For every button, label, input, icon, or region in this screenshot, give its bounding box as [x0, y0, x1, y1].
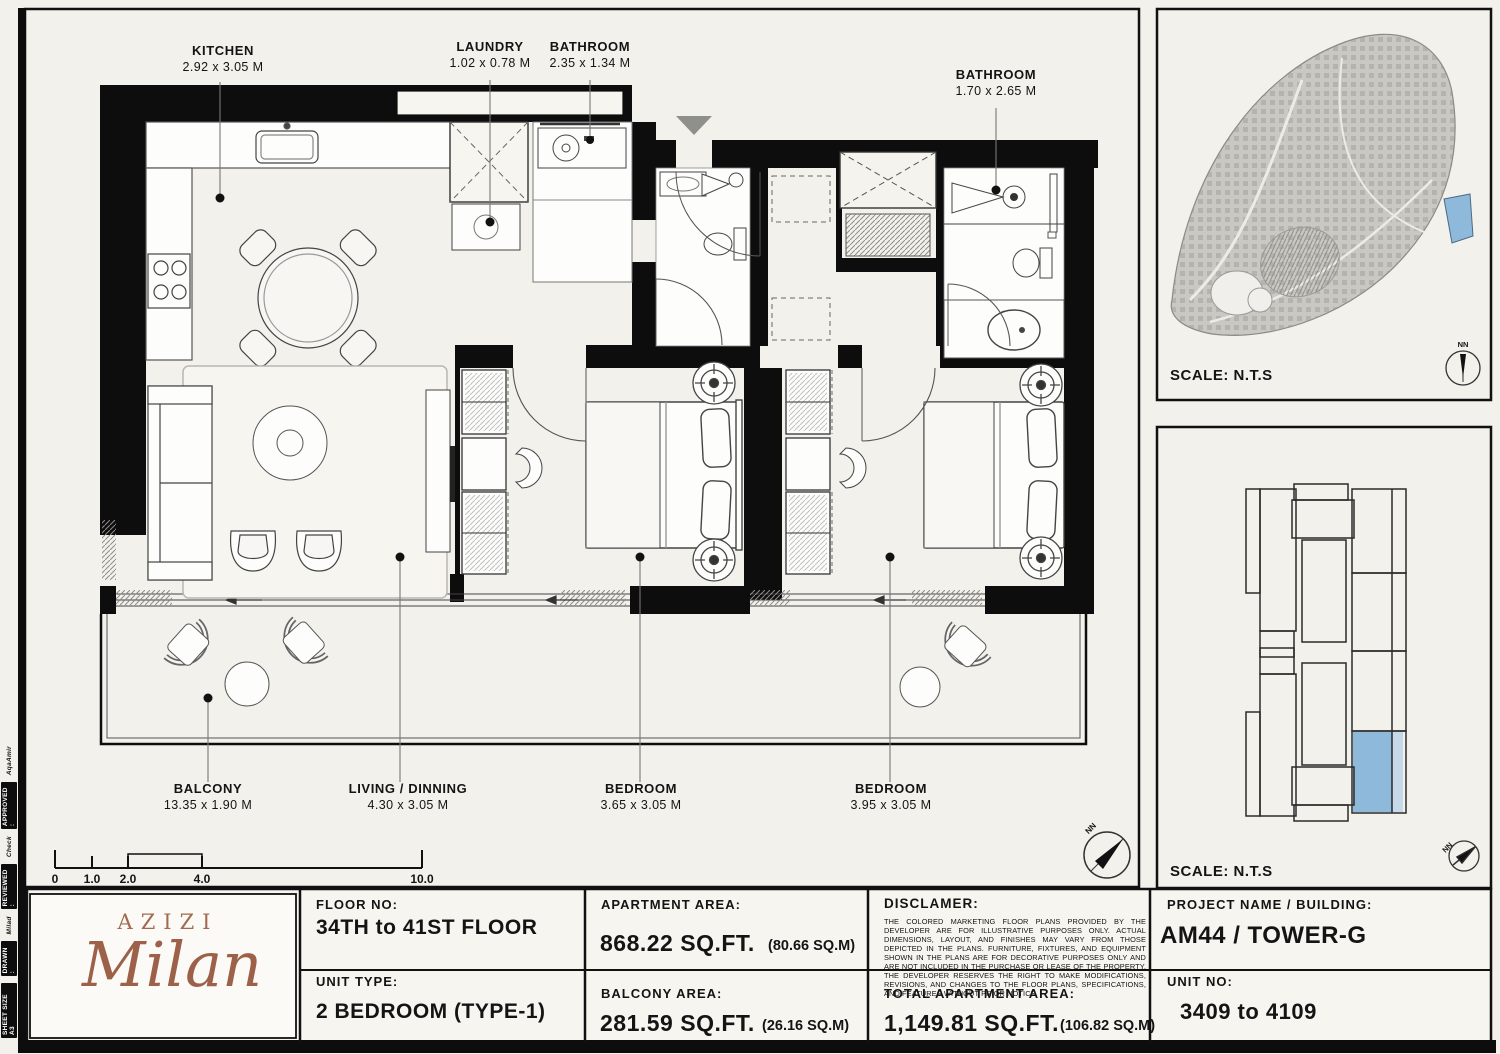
- wc: [656, 168, 750, 346]
- scale-tick: 1.0: [84, 872, 101, 886]
- disclaimer-label: DISCLAMER:: [884, 896, 979, 911]
- bed: [586, 400, 742, 550]
- bed: [924, 402, 1064, 548]
- reviewed-label: REVIEWED :: [1, 864, 17, 909]
- room-dims: 1.70 x 2.65 M: [956, 83, 1037, 100]
- drawn-name: Milad: [6, 916, 13, 934]
- room-dims: 3.95 x 3.05 M: [851, 797, 932, 814]
- approved-label: APPROVED :: [1, 782, 17, 829]
- scale-tick: 0: [52, 872, 59, 886]
- living-room: [148, 366, 455, 598]
- apartment-area-value: 868.22 SQ.FT.: [600, 930, 755, 957]
- closet: [840, 152, 936, 256]
- unit-type-value: 2 BEDROOM (TYPE-1): [316, 1000, 546, 1024]
- room-name: KITCHEN: [183, 42, 264, 59]
- floor-no-value: 34TH to 41ST FLOOR: [316, 916, 537, 940]
- room-name: BALCONY: [164, 780, 252, 797]
- project-value: AM44 / TOWER-G: [1160, 922, 1367, 950]
- total-area-value: 1,149.81 SQ.FT.: [884, 1010, 1059, 1037]
- drawn-label: DRAWN :: [1, 941, 17, 976]
- room-name: BATHROOM: [956, 66, 1037, 83]
- site-map-scale-label: SCALE: N.T.S: [1170, 367, 1273, 384]
- room-label-bathroom-1: BATHROOM 2.35 x 1.34 M: [550, 38, 631, 72]
- room-name: BEDROOM: [851, 780, 932, 797]
- unit-no-value: 3409 to 4109: [1180, 999, 1317, 1025]
- room-dims: 13.35 x 1.90 M: [164, 797, 252, 814]
- room-name: LIVING / DINNING: [349, 780, 468, 797]
- total-area-metric: (106.82 SQ.M): [1060, 1018, 1155, 1034]
- room-name: BATHROOM: [550, 38, 631, 55]
- apartment-area-label: APARTMENT AREA:: [601, 897, 741, 912]
- laundry: [450, 122, 528, 250]
- tv-screen: [450, 446, 455, 502]
- sofa: [148, 386, 212, 580]
- balcony-area-value: 281.59 SQ.FT.: [600, 1010, 755, 1037]
- room-dims: 2.92 x 3.05 M: [183, 59, 264, 76]
- bathroom-1: [533, 122, 632, 282]
- reviewed-name: Check: [6, 836, 13, 857]
- compass-north-label: NN: [1458, 340, 1469, 349]
- room-label-bathroom-2: BATHROOM 1.70 x 2.65 M: [956, 66, 1037, 100]
- key-plan-highlight: [1353, 732, 1392, 812]
- room-name: BEDROOM: [601, 780, 682, 797]
- room-label-bedroom-1: BEDROOM 3.65 x 3.05 M: [601, 780, 682, 814]
- scale-tick: 4.0: [194, 872, 211, 886]
- balcony-area-label: BALCONY AREA:: [601, 986, 722, 1001]
- scale-tick: 10.0: [410, 872, 433, 886]
- sheet-size-label: SHEET SIZE A3: [1, 983, 17, 1038]
- floor-no-label: FLOOR NO:: [316, 897, 398, 912]
- unit-type-label: UNIT TYPE:: [316, 974, 398, 989]
- floorplan-sheet: SHEET SIZE A3 DRAWN : Milad REVIEWED : C…: [0, 0, 1500, 1054]
- room-label-kitchen: KITCHEN 2.92 x 3.05 M: [183, 42, 264, 76]
- apartment-area-metric: (80.66 SQ.M): [768, 938, 855, 954]
- balcony-area-metric: (26.16 SQ.M): [762, 1018, 849, 1034]
- approved-name: AqaAmir: [6, 746, 13, 775]
- room-dims: 1.02 x 0.78 M: [450, 55, 531, 72]
- sheet-margin-strip: SHEET SIZE A3 DRAWN : Milad REVIEWED : C…: [2, 746, 16, 1038]
- coffee-table: [253, 406, 327, 480]
- floorplan-drawing: [0, 0, 1500, 1054]
- room-name: LAUNDRY: [450, 38, 531, 55]
- dining-table: [237, 227, 380, 370]
- project-label: PROJECT NAME / BUILDING:: [1167, 897, 1372, 912]
- room-dims: 4.30 x 3.05 M: [349, 797, 468, 814]
- key-plan-scale-label: SCALE: N.T.S: [1170, 863, 1273, 880]
- scale-tick: 2.0: [120, 872, 137, 886]
- wall-recess: [397, 91, 623, 115]
- room-label-bedroom-2: BEDROOM 3.95 x 3.05 M: [851, 780, 932, 814]
- room-label-laundry: LAUNDRY 1.02 x 0.78 M: [450, 38, 531, 72]
- total-area-label: TOTAL APARTMENT AREA:: [884, 986, 1075, 1001]
- room-label-balcony: BALCONY 13.35 x 1.90 M: [164, 780, 252, 814]
- room-label-living-dining: LIVING / DINNING 4.30 x 3.05 M: [349, 780, 468, 814]
- logo-name: Milan: [82, 935, 262, 995]
- bathroom-2: [944, 168, 1064, 358]
- unit-no-label: UNIT NO:: [1167, 974, 1233, 989]
- tv-console: [426, 390, 450, 552]
- room-dims: 3.65 x 3.05 M: [601, 797, 682, 814]
- room-dims: 2.35 x 1.34 M: [550, 55, 631, 72]
